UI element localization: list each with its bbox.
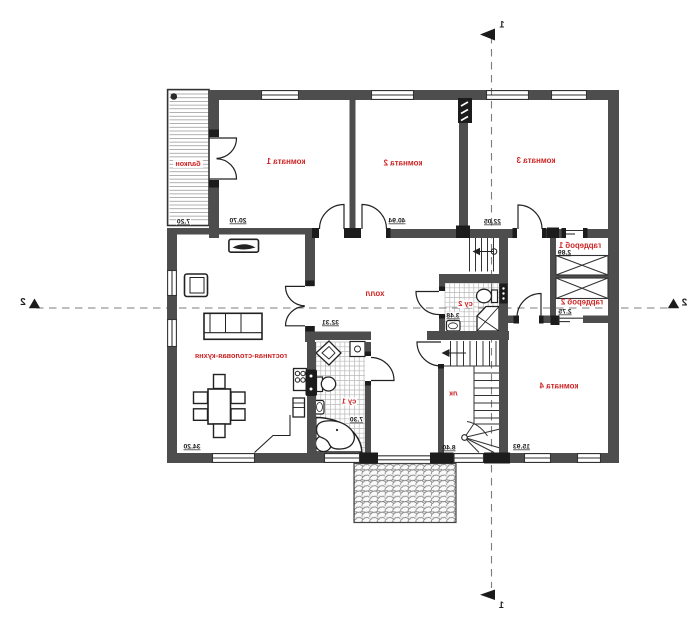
svg-text:32.31: 32.31 xyxy=(322,320,339,327)
svg-text:7.20: 7.20 xyxy=(177,219,190,226)
svg-text:2: 2 xyxy=(681,298,687,309)
svg-text:лк: лк xyxy=(449,389,458,398)
svg-text:34.20: 34.20 xyxy=(183,444,200,451)
svg-text:комната 1: комната 1 xyxy=(266,157,305,166)
svg-text:1: 1 xyxy=(499,20,504,30)
svg-text:комната 2: комната 2 xyxy=(383,159,422,168)
svg-text:балкон: балкон xyxy=(175,159,200,168)
svg-text:8.40: 8.40 xyxy=(442,445,455,452)
svg-text:40.94: 40.94 xyxy=(388,218,405,225)
svg-text:комната 3: комната 3 xyxy=(516,156,555,165)
svg-text:1: 1 xyxy=(499,600,504,610)
svg-text:2.89: 2.89 xyxy=(558,250,571,257)
svg-text:2.75: 2.75 xyxy=(558,309,571,316)
svg-text:2: 2 xyxy=(20,297,26,308)
svg-text:су 2: су 2 xyxy=(458,299,473,308)
svg-text:22.05: 22.05 xyxy=(484,219,501,226)
svg-text:холл: холл xyxy=(365,289,384,298)
svg-text:3.48: 3.48 xyxy=(446,313,459,320)
svg-text:комната 4: комната 4 xyxy=(539,382,578,391)
svg-text:15.93: 15.93 xyxy=(513,444,530,451)
svg-text:7.30: 7.30 xyxy=(350,417,363,424)
svg-text:су 1: су 1 xyxy=(342,397,357,406)
svg-text:20.70: 20.70 xyxy=(229,218,246,225)
svg-text:гардероб 2: гардероб 2 xyxy=(560,298,603,307)
svg-text:гостиная-столовая-кухня: гостиная-столовая-кухня xyxy=(195,351,287,360)
